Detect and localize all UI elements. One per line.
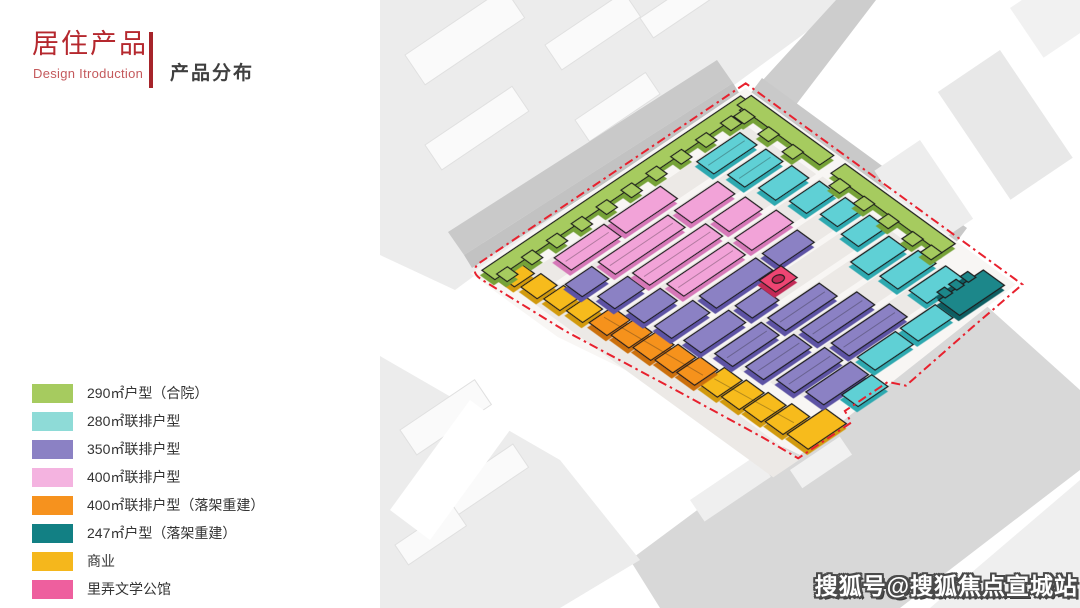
legend-swatch-pink bbox=[32, 468, 73, 487]
legend-swatch-cyan bbox=[32, 412, 73, 431]
legend-item-magenta: 里弄文学公馆 bbox=[32, 575, 332, 603]
legend-item-cyan: 280㎡联排户型 bbox=[32, 407, 332, 435]
page-title: 居住产品 bbox=[32, 30, 148, 60]
legend-swatch-yellow bbox=[32, 552, 73, 571]
section-title: 产品分布 bbox=[170, 58, 254, 85]
legend-label: 350㎡联排户型 bbox=[87, 439, 180, 459]
legend-label: 290㎡户型（合院） bbox=[87, 383, 208, 403]
legend-swatch-orange bbox=[32, 496, 73, 515]
watermark: 搜狐号@搜狐焦点宣城站 bbox=[815, 567, 1078, 601]
page-subtitle: Design Itroduction bbox=[33, 66, 143, 81]
legend-label: 商业 bbox=[87, 551, 115, 571]
legend-label: 280㎡联排户型 bbox=[87, 411, 180, 431]
legend-item-yellow: 商业 bbox=[32, 547, 332, 575]
legend-swatch-teal bbox=[32, 524, 73, 543]
legend-label: 400㎡联排户型（落架重建） bbox=[87, 495, 264, 515]
legend-item-orange: 400㎡联排户型（落架重建） bbox=[32, 491, 332, 519]
legend-label: 400㎡联排户型 bbox=[87, 467, 180, 487]
header: 居住产品 Design Itroduction 产品分布 bbox=[32, 30, 362, 100]
legend-label: 里弄文学公馆 bbox=[87, 579, 171, 599]
legend-swatch-magenta bbox=[32, 580, 73, 599]
title-divider-bar bbox=[149, 32, 153, 88]
legend-item-green: 290㎡户型（合院） bbox=[32, 379, 332, 407]
legend-item-pink: 400㎡联排户型 bbox=[32, 463, 332, 491]
legend: 290㎡户型（合院）280㎡联排户型350㎡联排户型400㎡联排户型400㎡联排… bbox=[32, 379, 332, 603]
legend-item-purple: 350㎡联排户型 bbox=[32, 435, 332, 463]
legend-label: 247㎡户型（落架重建） bbox=[87, 523, 236, 543]
legend-swatch-green bbox=[32, 384, 73, 403]
legend-swatch-purple bbox=[32, 440, 73, 459]
legend-item-teal: 247㎡户型（落架重建） bbox=[32, 519, 332, 547]
